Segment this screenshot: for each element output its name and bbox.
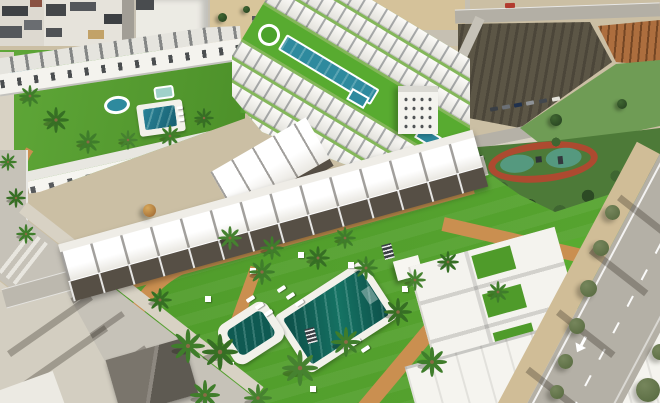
planter [310,386,316,392]
sidewalk-palm-tree [0,153,17,171]
verge-tree [558,354,573,369]
sun-lounger [177,106,183,110]
aerial-photo [0,0,660,403]
palm-tree [331,327,361,357]
planter [205,296,211,302]
corner-tree [636,378,660,402]
verge-tree [605,205,620,220]
palm-tree [171,329,205,363]
plaza-tree [218,13,227,22]
town-roof [2,6,28,16]
apartment-roof [398,86,438,92]
palm-tree [384,298,412,326]
palm-tree [218,226,242,250]
town-roof [24,20,42,30]
palm-tree [202,334,238,370]
verge-tree [569,318,585,334]
palm-tree [244,384,272,403]
palm-tree [249,259,275,285]
palm-tree [190,380,220,403]
town-roof [136,0,154,10]
apartment-windows [402,95,434,130]
se-garden-slot [471,245,516,279]
parked-car [552,96,561,101]
palm-tree [194,108,214,128]
sidewalk-palm-tree [6,188,26,208]
palm-tree [76,130,100,154]
paddling-pool [153,85,175,101]
palm-tree [118,130,138,150]
palm-tree [354,256,378,280]
verge-tree [550,385,564,399]
town-roof-red [30,0,42,7]
palm-tree [487,281,509,303]
palm-tree [306,246,330,270]
north-road [455,2,660,23]
ne-tree [617,99,627,109]
verge-tree [593,240,609,256]
palm-tree [404,269,426,291]
palm-tree [334,227,356,249]
palm-tree [417,347,447,377]
verge-tree [580,280,597,297]
town-roof [104,14,122,24]
red-truck [505,3,515,8]
sun-lounger [178,118,184,122]
sun-lounger [177,112,183,116]
planter [298,252,304,258]
apartment-building [398,86,438,134]
town-roof [70,2,96,11]
palm-tree [282,350,318,386]
palm-tree [148,288,172,312]
palm-tree [43,107,69,133]
palm-tree [437,251,459,273]
sidewalk-palm-tree [16,224,36,244]
autumn-tree [143,204,156,217]
palm-tree [260,236,284,260]
palm-tree [159,125,181,147]
palm-tree [19,85,41,107]
town-roof [46,4,66,16]
